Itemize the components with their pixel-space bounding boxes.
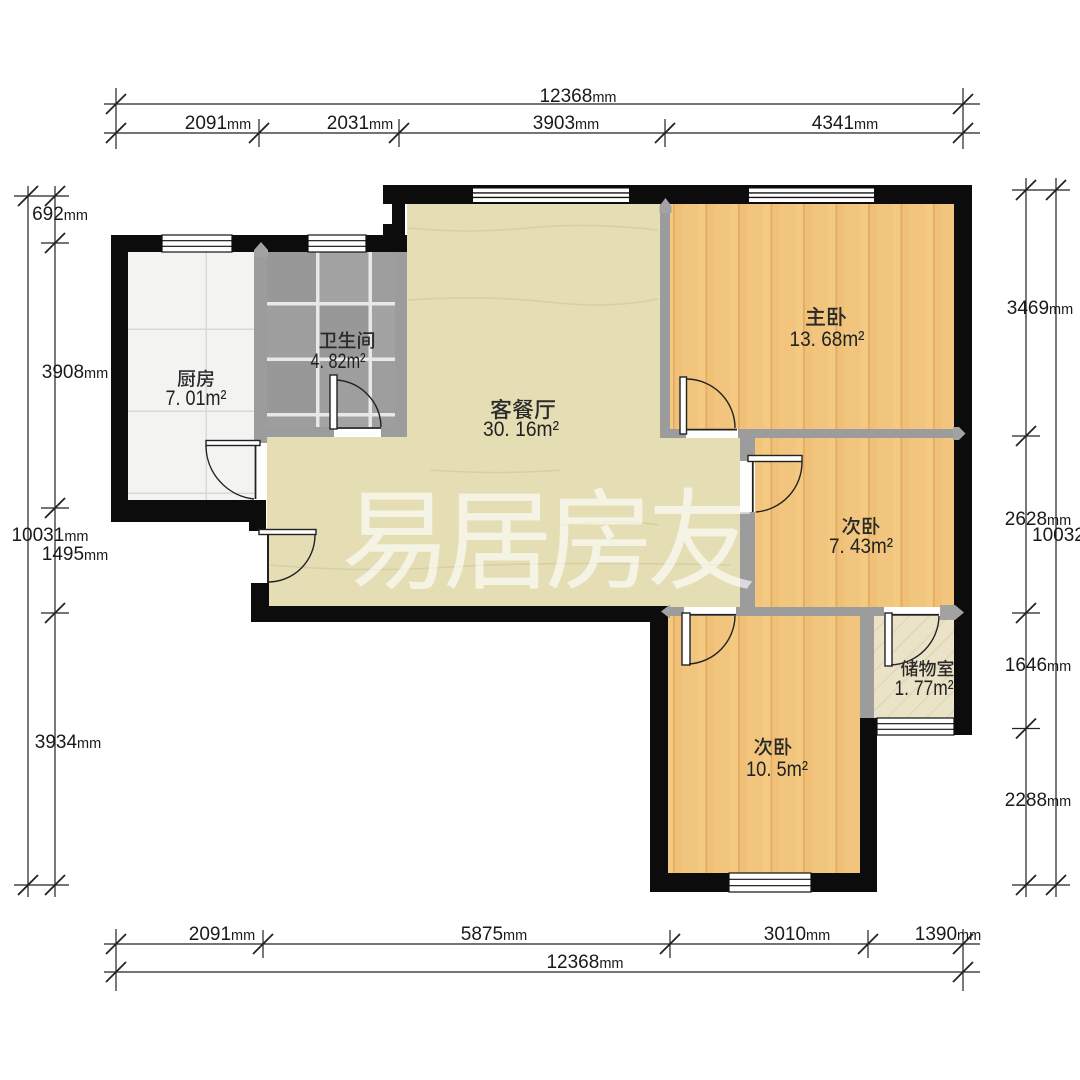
svg-text:1495mm: 1495mm	[42, 544, 108, 565]
svg-text:3903mm: 3903mm	[533, 113, 599, 134]
svg-text:4341mm: 4341mm	[812, 113, 878, 134]
svg-text:10031mm: 10031mm	[11, 525, 88, 546]
svg-text:5875mm: 5875mm	[461, 924, 527, 945]
svg-text:10032mm: 10032mm	[1032, 525, 1080, 546]
svg-text:3010mm: 3010mm	[764, 924, 830, 945]
svg-text:2091mm: 2091mm	[185, 113, 251, 134]
svg-text:2288mm: 2288mm	[1005, 790, 1071, 811]
svg-text:3469mm: 3469mm	[1007, 298, 1073, 319]
svg-text:7. 01m²: 7. 01m²	[166, 387, 227, 410]
svg-text:12368mm: 12368mm	[546, 952, 623, 973]
svg-text:4. 82m²: 4. 82m²	[311, 350, 366, 373]
svg-text:1646mm: 1646mm	[1005, 655, 1071, 676]
svg-text:12368mm: 12368mm	[539, 86, 616, 107]
svg-text:3934mm: 3934mm	[35, 732, 101, 753]
svg-text:30. 16m²: 30. 16m²	[483, 418, 559, 441]
svg-text:1. 77m²: 1. 77m²	[895, 677, 954, 700]
svg-text:1390mm: 1390mm	[915, 924, 981, 945]
svg-text:7. 43m²: 7. 43m²	[829, 535, 893, 558]
svg-text:2031mm: 2031mm	[327, 113, 393, 134]
svg-text:3908mm: 3908mm	[42, 362, 108, 383]
svg-text:2091mm: 2091mm	[189, 924, 255, 945]
svg-text:10. 5m²: 10. 5m²	[746, 758, 808, 781]
svg-text:692mm: 692mm	[32, 204, 88, 225]
svg-text:13. 68m²: 13. 68m²	[790, 328, 865, 351]
